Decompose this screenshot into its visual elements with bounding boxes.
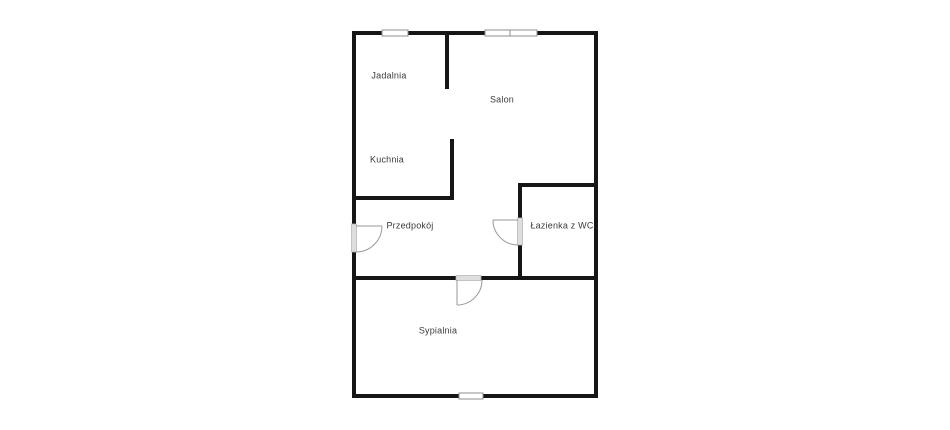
- entrance-door-swing-arc: [356, 226, 382, 252]
- salon-window-right: [510, 30, 537, 36]
- wall-lazienka-left-upper: [518, 187, 522, 220]
- room-label-jadalnia: Jadalnia: [371, 70, 406, 80]
- wall-outer-left-upper: [352, 31, 356, 224]
- walls: [352, 31, 598, 398]
- lazienka-door-frame: [518, 218, 523, 245]
- wall-jadalnia-salon-divider: [445, 35, 449, 89]
- room-label-przedpokoj: Przedpokój: [386, 220, 433, 230]
- room-label-kuchnia: Kuchnia: [370, 154, 404, 164]
- sypialnia-door-frame: [456, 276, 481, 281]
- sypialnia-window: [459, 393, 483, 399]
- wall-hall-sypialnia-east: [481, 276, 594, 280]
- doors: [352, 218, 523, 305]
- wall-hall-sypialnia-west: [356, 276, 456, 280]
- wall-outer-right: [594, 31, 598, 398]
- wall-lazienka-left-lower: [518, 245, 522, 280]
- salon-window-left: [485, 30, 510, 36]
- lazienka-door-swing-arc: [493, 220, 518, 245]
- wall-outer-left-lower: [352, 252, 356, 398]
- room-label-salon: Salon: [490, 94, 514, 104]
- wall-kuchnia-bottom: [356, 196, 454, 200]
- room-labels: JadalniaSalonKuchniaPrzedpokójŁazienka z…: [370, 70, 594, 335]
- floorplan-page: JadalniaSalonKuchniaPrzedpokójŁazienka z…: [0, 0, 950, 430]
- sypialnia-door-swing-arc: [457, 280, 482, 305]
- room-label-lazienka: Łazienka z WC: [530, 220, 593, 230]
- room-label-sypialnia: Sypialnia: [419, 325, 457, 335]
- floorplan-image: JadalniaSalonKuchniaPrzedpokójŁazienka z…: [0, 0, 950, 430]
- wall-lazienka-top: [518, 183, 594, 187]
- windows: [382, 30, 537, 399]
- wall-kuchnia-right: [450, 139, 454, 200]
- entrance-door-frame: [352, 224, 357, 252]
- jadalnia-window: [382, 30, 408, 36]
